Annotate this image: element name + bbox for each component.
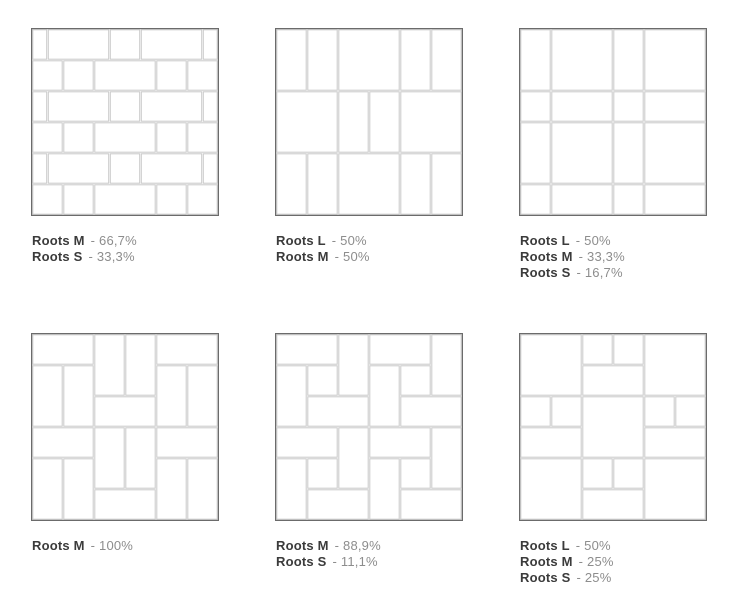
tile [33,92,47,121]
tile [95,61,155,90]
tile-pattern-svg [275,28,463,216]
tile [676,397,705,426]
tile [277,428,337,457]
tile-pattern-diagram-1 [31,28,219,216]
tile [33,61,62,90]
legend-size-name: Roots S [276,554,327,569]
tile [370,428,430,457]
tile [308,154,337,214]
tile [188,123,217,152]
tile [521,123,550,183]
tile [339,428,368,488]
tile [614,30,643,90]
tile [370,366,399,426]
tile [521,185,550,214]
tile-pattern-svg [519,28,707,216]
legend-value: - 16,7% [577,265,623,280]
tile [203,30,217,59]
tile [645,397,674,426]
tile [126,428,155,488]
tile [64,123,93,152]
legend-line: Roots L- 50% [276,233,463,249]
tile [401,366,430,395]
tile [401,397,461,426]
legend-value: - 100% [91,538,133,553]
pattern-legend-2: Roots L- 50%Roots M- 50% [276,233,463,265]
tile [552,185,612,214]
tile [339,335,368,395]
pattern-legend-6: Roots L- 50%Roots M- 25%Roots S- 25% [520,538,707,586]
tile [188,459,217,519]
tile [277,92,337,152]
tile-pattern-catalog-page: Roots M- 66,7%Roots S- 33,3% Roots L- 50… [0,0,755,607]
tile [401,92,461,152]
tile [432,335,461,395]
tile [203,154,217,183]
tile [95,397,155,426]
tile [583,335,612,364]
tile-pattern-svg [275,333,463,521]
tile [157,459,186,519]
tile [188,61,217,90]
legend-value: - 50% [332,233,367,248]
tile [157,366,186,426]
legend-value: - 50% [576,233,611,248]
tile [521,428,581,457]
legend-value: - 88,9% [335,538,381,553]
tile [645,185,705,214]
pattern-legend-3: Roots L- 50%Roots M- 33,3%Roots S- 16,7% [520,233,707,281]
tile [583,459,612,488]
legend-size-name: Roots M [32,538,85,553]
tile [188,185,217,214]
tile [157,428,217,457]
tile [432,154,461,214]
tile [614,185,643,214]
tile [432,30,461,90]
legend-size-name: Roots M [520,554,573,569]
tile [33,459,62,519]
legend-line: Roots L- 50% [520,538,707,554]
legend-value: - 33,3% [579,249,625,264]
pattern-card-2: Roots L- 50%Roots M- 50% [275,28,463,281]
legend-value: - 50% [576,538,611,553]
pattern-card-1: Roots M- 66,7%Roots S- 33,3% [31,28,219,281]
tile [277,335,337,364]
tile [552,123,612,183]
tile [308,397,368,426]
legend-line: Roots S- 11,1% [276,554,463,570]
tile [583,397,643,457]
tile [64,185,93,214]
tile [401,490,461,519]
tile [308,366,337,395]
pattern-card-5: Roots M- 88,9%Roots S- 11,1% [275,333,463,586]
tile-pattern-diagram-5 [275,333,463,521]
legend-line: Roots M- 66,7% [32,233,219,249]
legend-value: - 25% [577,570,612,585]
tile-pattern-diagram-3 [519,28,707,216]
tile-pattern-diagram-2 [275,28,463,216]
pattern-legend-4: Roots M- 100% [32,538,219,554]
tile [552,30,612,90]
tile [110,30,139,59]
tile [645,92,705,121]
tile [110,92,139,121]
tile [277,366,306,426]
tile [95,490,155,519]
pattern-legend-1: Roots M- 66,7%Roots S- 33,3% [32,233,219,265]
tile [614,92,643,121]
tile [141,30,201,59]
legend-size-name: Roots S [520,570,571,585]
legend-line: Roots M- 50% [276,249,463,265]
tile-pattern-diagram-4 [31,333,219,521]
tile [521,92,550,121]
tile [401,154,430,214]
tile [614,123,643,183]
tile [141,154,201,183]
legend-size-name: Roots M [276,249,329,264]
tile [33,123,62,152]
tile [645,30,705,90]
legend-line: Roots L- 50% [520,233,707,249]
tile-pattern-svg [31,333,219,521]
tile [48,154,108,183]
legend-size-name: Roots M [520,249,573,264]
tile [157,61,186,90]
tile [645,459,705,519]
tile [48,30,108,59]
tile [432,428,461,488]
tile [401,30,430,90]
tile [521,30,550,90]
legend-value: - 11,1% [333,554,378,569]
tile [33,30,47,59]
tile [339,92,368,152]
tile [203,92,217,121]
tile [188,366,217,426]
tile-pattern-svg [519,333,707,521]
tile [308,30,337,90]
tile [308,459,337,488]
legend-line: Roots M- 100% [32,538,219,554]
tile-pattern-diagram-6 [519,333,707,521]
tile [277,30,306,90]
tile [95,428,124,488]
tile [552,397,581,426]
tile [521,459,581,519]
tile [95,123,155,152]
tile [64,459,93,519]
legend-value: - 50% [335,249,370,264]
tile [645,335,705,395]
tile [277,154,306,214]
tile [370,335,430,364]
legend-line: Roots M- 33,3% [520,249,707,265]
tile [33,154,47,183]
tile [339,154,399,214]
tile [308,490,368,519]
tile [645,428,705,457]
legend-line: Roots M- 88,9% [276,538,463,554]
legend-size-name: Roots M [276,538,329,553]
tile [33,335,93,364]
legend-size-name: Roots S [32,249,83,264]
tile [64,366,93,426]
tile [157,185,186,214]
tile [110,154,139,183]
legend-size-name: Roots L [520,233,570,248]
pattern-card-6: Roots L- 50%Roots M- 25%Roots S- 25% [519,333,707,586]
tile [64,61,93,90]
tile [126,335,155,395]
tile [370,92,399,152]
tile [157,123,186,152]
tile [141,92,201,121]
tile [521,335,581,395]
legend-value: - 33,3% [89,249,135,264]
tile [583,490,643,519]
tile [95,185,155,214]
tile [33,185,62,214]
tile [277,459,306,519]
tile [48,92,108,121]
legend-line: Roots S- 33,3% [32,249,219,265]
legend-value: - 66,7% [91,233,137,248]
legend-value: - 25% [579,554,614,569]
tile [401,459,430,488]
pattern-legend-5: Roots M- 88,9%Roots S- 11,1% [276,538,463,570]
tile [552,92,612,121]
tile [33,366,62,426]
pattern-card-3: Roots L- 50%Roots M- 33,3%Roots S- 16,7% [519,28,707,281]
legend-size-name: Roots L [276,233,326,248]
tile [339,30,399,90]
legend-line: Roots M- 25% [520,554,707,570]
tile [95,335,124,395]
tile [614,335,643,364]
tile [614,459,643,488]
legend-line: Roots S- 16,7% [520,265,707,281]
tile [583,366,643,395]
tile [33,428,93,457]
tile [645,123,705,183]
legend-line: Roots S- 25% [520,570,707,586]
legend-size-name: Roots L [520,538,570,553]
legend-size-name: Roots M [32,233,85,248]
tile [157,335,217,364]
legend-size-name: Roots S [520,265,571,280]
tile-pattern-svg [31,28,219,216]
tile [370,459,399,519]
tile [521,397,550,426]
pattern-card-4: Roots M- 100% [31,333,219,586]
